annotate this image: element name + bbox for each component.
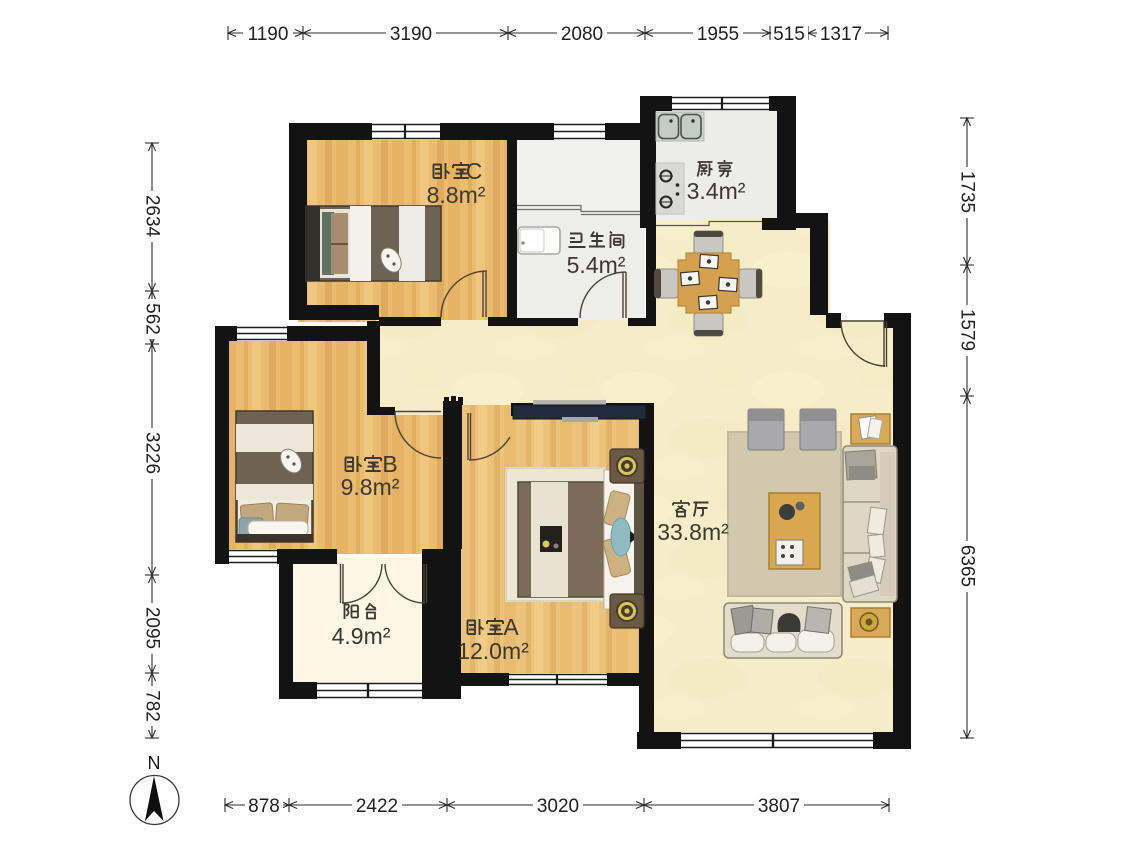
svg-text:1955: 1955 [697, 24, 739, 45]
svg-text:9.8m²: 9.8m² [341, 474, 400, 500]
svg-text:1317: 1317 [820, 24, 862, 45]
svg-text:3190: 3190 [390, 24, 432, 45]
svg-text:12.0m²: 12.0m² [457, 638, 529, 664]
svg-text:3226: 3226 [142, 432, 163, 474]
svg-text:A: A [503, 614, 519, 640]
svg-text:515: 515 [773, 24, 805, 45]
svg-text:562: 562 [142, 303, 163, 335]
svg-text:3.4m²: 3.4m² [687, 178, 746, 204]
svg-text:4.9m²: 4.9m² [332, 623, 391, 649]
svg-text:878: 878 [248, 796, 280, 817]
svg-text:3020: 3020 [537, 796, 579, 817]
svg-text:33.8m²: 33.8m² [657, 519, 729, 545]
svg-text:2080: 2080 [561, 24, 603, 45]
svg-text:2634: 2634 [142, 195, 163, 238]
svg-text:1579: 1579 [957, 309, 978, 351]
svg-text:782: 782 [142, 690, 163, 722]
svg-text:N: N [148, 753, 161, 773]
svg-text:2422: 2422 [356, 796, 398, 817]
svg-text:2095: 2095 [142, 607, 163, 649]
svg-text:6365: 6365 [957, 545, 978, 587]
svg-text:3807: 3807 [758, 796, 800, 817]
svg-text:C: C [466, 158, 483, 184]
svg-text:1735: 1735 [957, 171, 978, 213]
svg-text:1190: 1190 [248, 24, 289, 45]
svg-text:8.8m²: 8.8m² [427, 182, 486, 208]
svg-text:5.4m²: 5.4m² [567, 252, 626, 278]
